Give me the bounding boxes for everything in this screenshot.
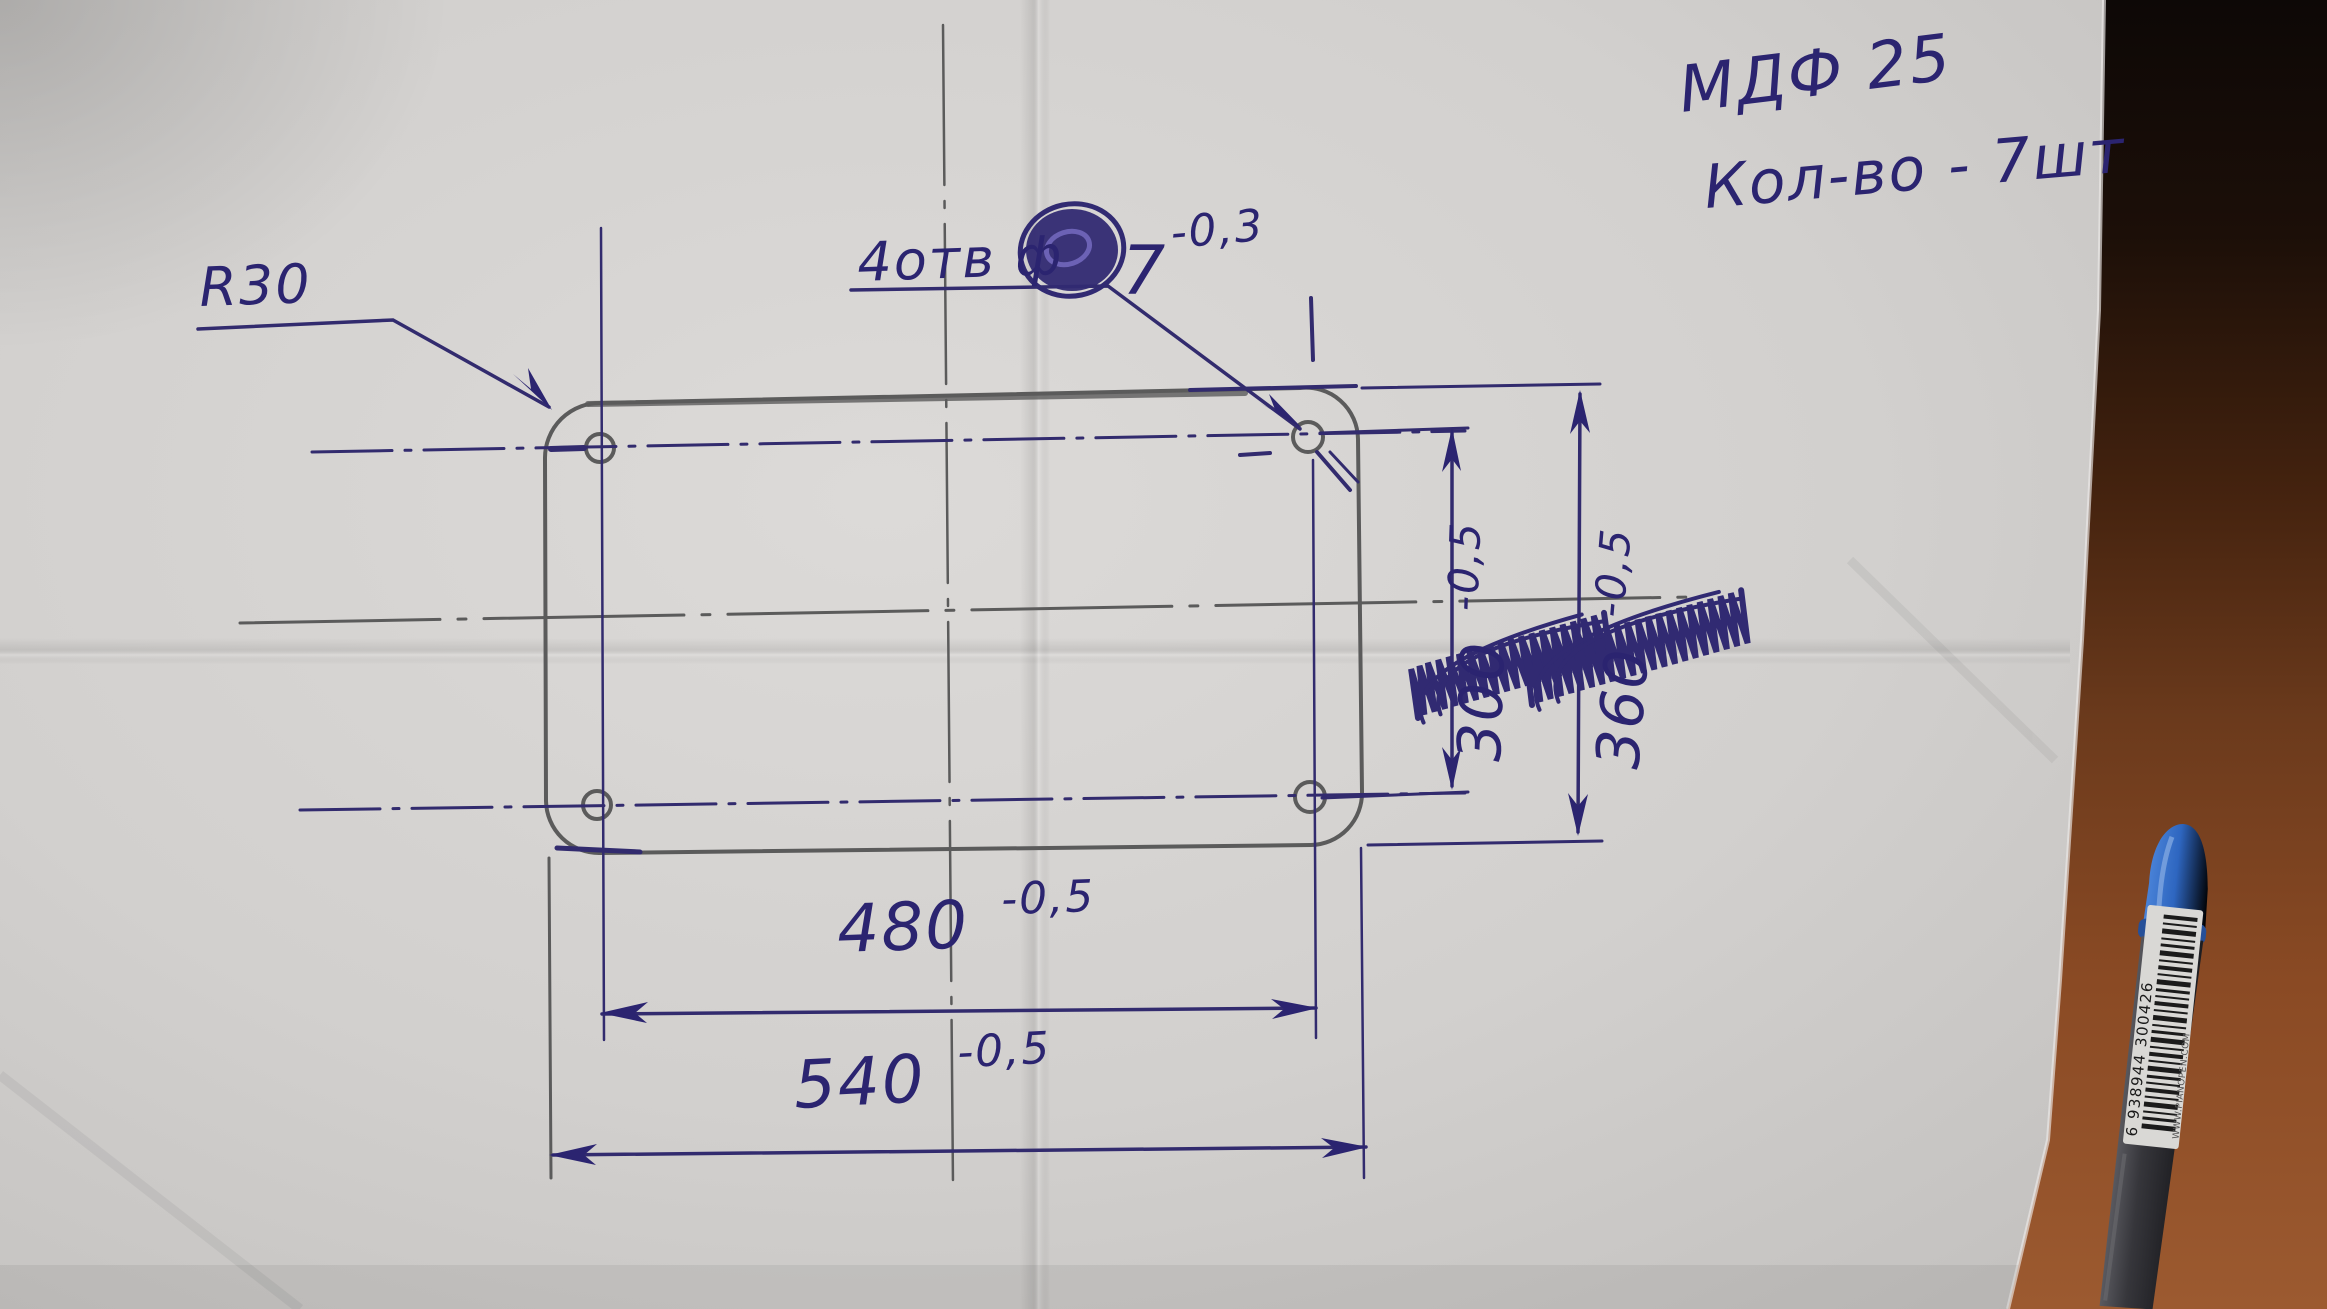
dimension-480-value: 480 — [836, 886, 971, 968]
dimension-300-tolerance: -0,5 — [1438, 520, 1490, 612]
sketch-photo: R30 4отв ф 7 -0,3 480 -0,5 540 -0,5 300 … — [0, 0, 2327, 1309]
dimension-540-value: 540 — [792, 1040, 928, 1124]
extension-line-540-left — [549, 858, 551, 1178]
paper-bottom-shade — [0, 1265, 2050, 1309]
dimension-300-value: 300 — [1445, 640, 1519, 763]
photo-of-hand-drawn-sketch: R30 4отв ф 7 -0,3 480 -0,5 540 -0,5 300 … — [0, 0, 2327, 1309]
horizontal-fold-crease — [0, 638, 2070, 664]
ink-dash — [1240, 453, 1270, 455]
tick-above-top-right-hole — [1311, 298, 1313, 360]
holes-note-value: 7 — [1122, 232, 1167, 311]
corner-radius-label: R30 — [198, 252, 312, 319]
holes-note-tolerance: -0,3 — [1169, 200, 1267, 259]
ink-dash — [551, 448, 584, 449]
holes-note-prefix: 4отв ф — [856, 224, 1064, 294]
dimension-480-tolerance: -0,5 — [1000, 871, 1096, 925]
dimension-360-value: 360 — [1583, 645, 1663, 771]
dimension-360-tolerance: -0,5 — [1584, 526, 1641, 620]
dimension-540-tolerance: -0,5 — [956, 1023, 1052, 1079]
dimension-line-360 — [1578, 394, 1580, 832]
